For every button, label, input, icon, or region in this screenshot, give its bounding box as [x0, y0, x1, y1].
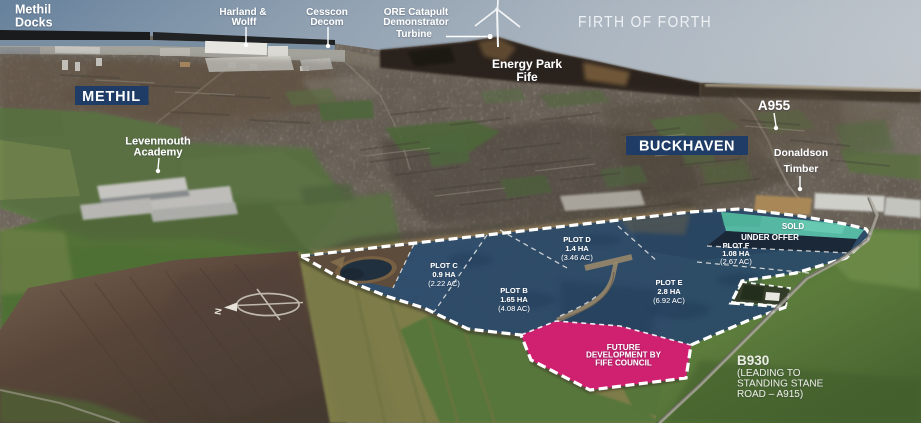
svg-text:Timber: Timber — [784, 163, 819, 175]
svg-text:SOLD: SOLD — [782, 222, 804, 231]
svg-text:PLOT B: PLOT B — [500, 286, 528, 295]
svg-text:Donaldson: Donaldson — [774, 147, 828, 159]
svg-text:FIFE COUNCIL: FIFE COUNCIL — [595, 359, 652, 368]
svg-text:A955: A955 — [758, 98, 791, 113]
svg-text:FIRTH OF FORTH: FIRTH OF FORTH — [578, 14, 712, 31]
svg-text:ROAD – A915): ROAD – A915) — [737, 389, 803, 400]
svg-text:2.8 HA: 2.8 HA — [657, 287, 681, 296]
svg-text:Docks: Docks — [15, 16, 53, 30]
svg-text:Wolff: Wolff — [232, 17, 257, 28]
svg-text:Turbine: Turbine — [396, 29, 432, 40]
svg-text:Energy Park: Energy Park — [492, 57, 562, 71]
svg-text:(3.46 AC): (3.46 AC) — [561, 253, 593, 262]
svg-text:Decom: Decom — [310, 17, 343, 28]
svg-text:BUCKHAVEN: BUCKHAVEN — [639, 139, 735, 155]
svg-text:Methil: Methil — [15, 3, 51, 17]
svg-text:Fife: Fife — [516, 70, 538, 84]
svg-text:(2.22 AC): (2.22 AC) — [428, 279, 460, 288]
svg-text:(4.08 AC): (4.08 AC) — [498, 304, 530, 313]
svg-text:STANDING STANE: STANDING STANE — [737, 379, 824, 390]
svg-text:UNDER OFFER: UNDER OFFER — [741, 233, 799, 242]
svg-text:1.4 HA: 1.4 HA — [565, 244, 589, 253]
svg-text:(6.92 AC): (6.92 AC) — [653, 296, 685, 305]
svg-text:PLOT D: PLOT D — [563, 235, 591, 244]
svg-text:(LEADING TO: (LEADING TO — [737, 368, 801, 379]
svg-text:PLOT C: PLOT C — [430, 261, 458, 270]
svg-text:PLOT E: PLOT E — [655, 278, 682, 287]
svg-text:Academy: Academy — [134, 147, 184, 159]
svg-text:Demonstrator: Demonstrator — [383, 17, 449, 28]
svg-text:B930: B930 — [737, 353, 769, 368]
svg-text:0.9 HA: 0.9 HA — [432, 270, 456, 279]
svg-text:1.65 HA: 1.65 HA — [500, 295, 528, 304]
svg-text:METHIL: METHIL — [82, 89, 141, 105]
svg-text:(2.67 AC): (2.67 AC) — [720, 257, 752, 266]
